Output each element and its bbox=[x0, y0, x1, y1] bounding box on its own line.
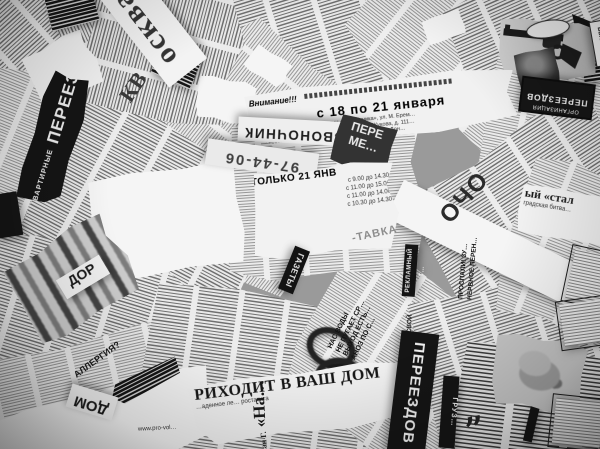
bystro-text: БЫСТРО… bbox=[596, 27, 600, 60]
svoy-label: СВОЙ bbox=[406, 303, 418, 333]
website-url-text: www.pro-vol… bbox=[138, 425, 177, 433]
classified-ad-box bbox=[555, 295, 600, 351]
attention-label: Внимание!!! bbox=[248, 95, 297, 109]
roman-small-text: Роман Г. bbox=[259, 431, 270, 449]
pereezdov-text: ПЕРЕЕЗДОВ bbox=[399, 341, 428, 445]
roman-big-text: «На… bbox=[248, 380, 269, 428]
classified-ad-box bbox=[547, 393, 600, 449]
roman-vertical-headline: Роман Г. «На… bbox=[248, 369, 289, 449]
moving-ad-word-kvartirnye: КВАРТИРНЫЕ bbox=[30, 148, 54, 207]
prospali-headline: ПРОСПАЛИ! ЗУ… НЕРВНОЕ ПЕРЕН… bbox=[457, 237, 488, 301]
newspaper-collage-photo: осква КВ КВАРТИРНЫЕ ПЕРЕЕЗ Внимание!!! с… bbox=[0, 0, 600, 449]
